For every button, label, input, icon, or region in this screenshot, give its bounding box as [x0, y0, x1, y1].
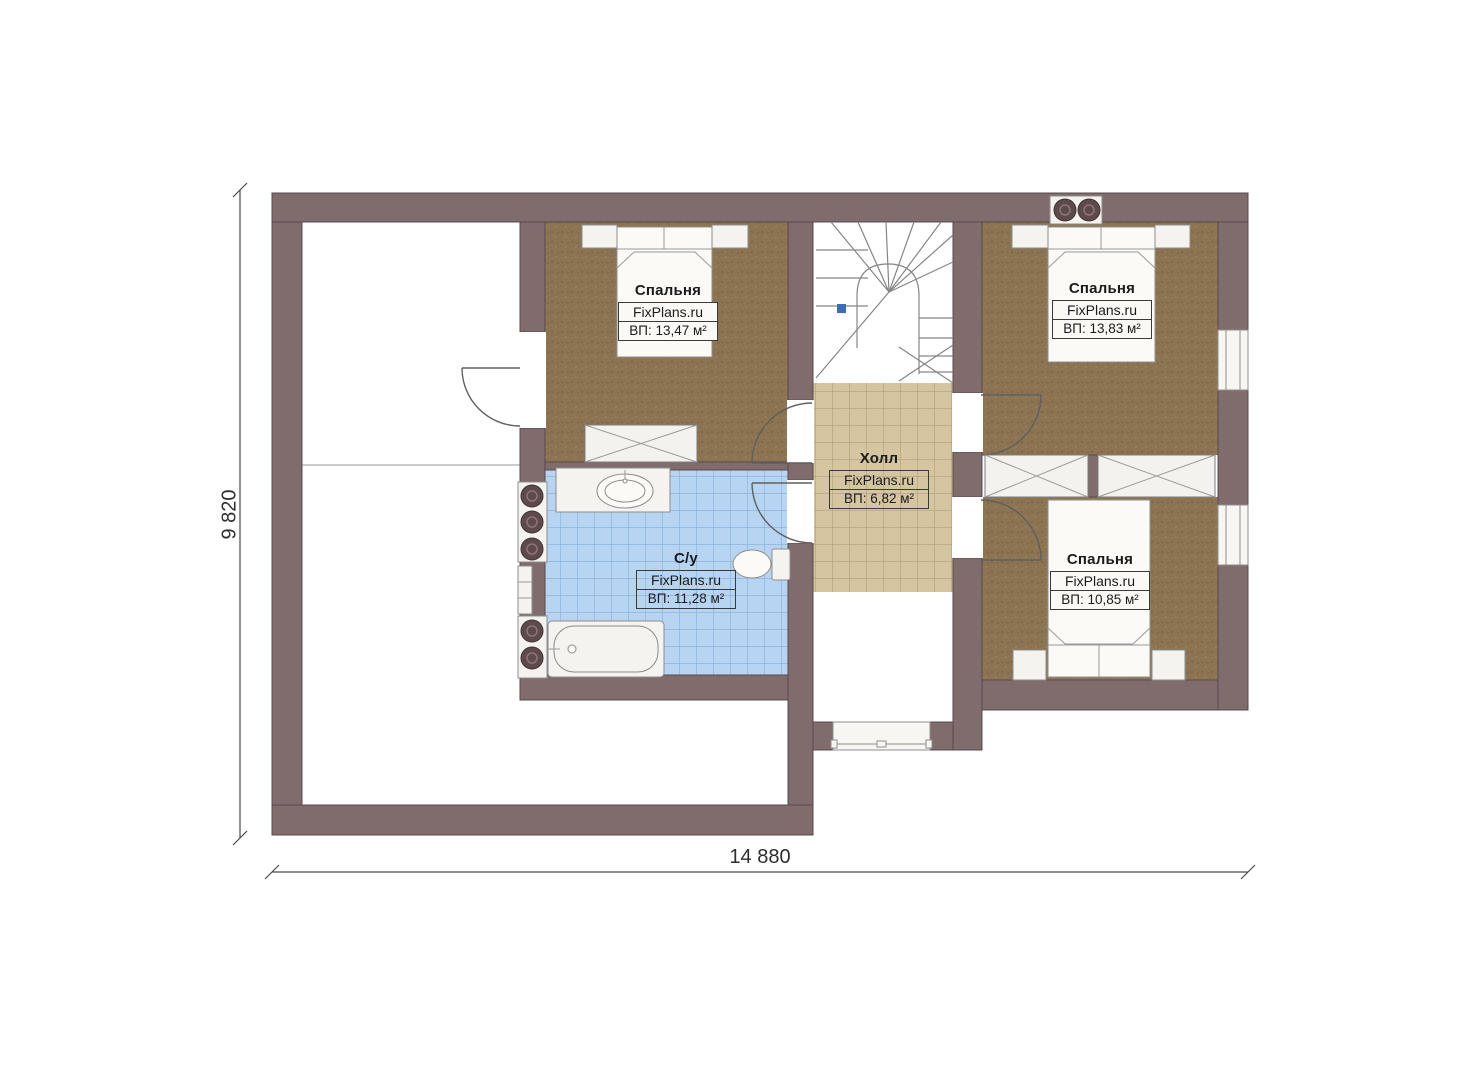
room-label-bedroom-1: Спальня FixPlans.ru ВП: 13,47 м² [618, 283, 718, 341]
room-name: Спальня [618, 283, 718, 299]
wardrobe-bedroom1 [585, 425, 697, 462]
dimension-height: 9 820 [219, 480, 242, 550]
room-info-box: FixPlans.ru ВП: 11,28 м² [636, 570, 736, 609]
toilet [733, 549, 790, 580]
room-label-bedroom-2: Спальня FixPlans.ru ВП: 13,83 м² [1052, 281, 1152, 339]
room-area: ВП: 13,83 м² [1053, 319, 1151, 338]
towel-radiator [518, 566, 532, 614]
chimney-flues [1050, 196, 1102, 224]
room-label-bedroom-3: Спальня FixPlans.ru ВП: 10,85 м² [1050, 552, 1150, 610]
floor-plan: Спальня FixPlans.ru ВП: 13,47 м² Спальня… [0, 0, 1474, 1080]
room-info-box: FixPlans.ru ВП: 10,85 м² [1050, 571, 1150, 610]
bathtub [548, 621, 664, 677]
door-storage-bedroom1 [462, 368, 520, 426]
brand-watermark: FixPlans.ru [619, 303, 717, 321]
brand-watermark: FixPlans.ru [637, 571, 735, 589]
dimension-width: 14 880 [710, 846, 810, 869]
room-label-bathroom: С/у FixPlans.ru ВП: 11,28 м² [636, 551, 736, 609]
window-bay [831, 722, 932, 750]
closet-right [1098, 455, 1215, 497]
window-bedroom2 [1218, 330, 1248, 390]
bathroom-vanity-sink [556, 468, 670, 512]
room-name: С/у [636, 551, 736, 567]
room-area: ВП: 13,47 м² [619, 321, 717, 340]
plumbing-risers-upper [518, 482, 547, 562]
room-label-hall: Холл FixPlans.ru ВП: 6,82 м² [829, 451, 929, 509]
room-info-box: FixPlans.ru ВП: 6,82 м² [829, 470, 929, 509]
plumbing-risers-lower [518, 616, 547, 678]
room-area: ВП: 11,28 м² [637, 589, 735, 608]
stair-level-marker [837, 304, 846, 313]
room-area: ВП: 10,85 м² [1051, 590, 1149, 609]
closet-left [985, 455, 1088, 497]
brand-watermark: FixPlans.ru [830, 471, 928, 489]
room-name: Спальня [1050, 552, 1150, 568]
brand-watermark: FixPlans.ru [1051, 572, 1149, 590]
window-bedroom3 [1218, 505, 1248, 565]
room-info-box: FixPlans.ru ВП: 13,47 м² [618, 302, 718, 341]
room-name: Холл [829, 451, 929, 467]
room-name: Спальня [1052, 281, 1152, 297]
staircase [816, 222, 953, 383]
brand-watermark: FixPlans.ru [1053, 301, 1151, 319]
room-area: ВП: 6,82 м² [830, 489, 928, 508]
room-info-box: FixPlans.ru ВП: 13,83 м² [1052, 300, 1152, 339]
